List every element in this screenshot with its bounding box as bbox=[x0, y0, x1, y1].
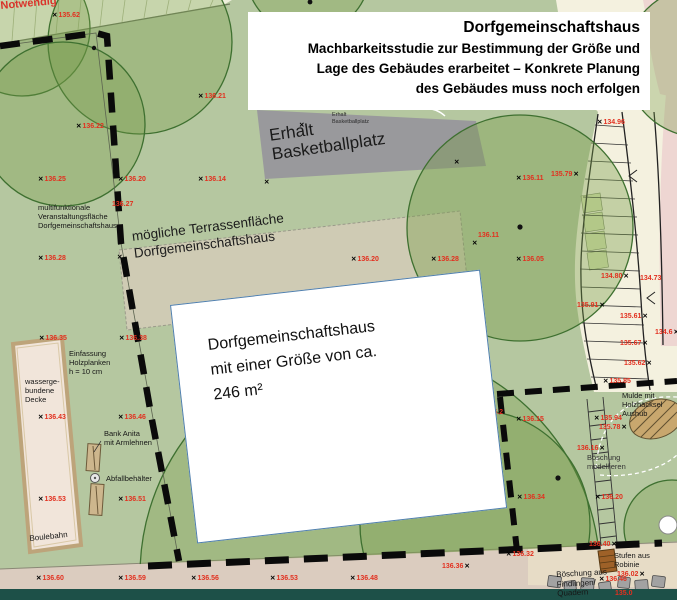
building-footprint-box: Dorfgemeinschaftshaus mit einer Größe vo… bbox=[170, 270, 507, 544]
page-subtitle: Machbarkeitsstudie zur Bestimmung der Gr… bbox=[258, 39, 640, 100]
page-title: Dorfgemeinschaftshaus bbox=[258, 18, 640, 39]
waste-bin-icon bbox=[91, 474, 100, 483]
building-label: Dorfgemeinschaftshaus mit einer Größe vo… bbox=[207, 315, 382, 408]
title-box: Dorfgemeinschaftshaus Machbarkeitsstudie… bbox=[248, 12, 650, 110]
wooden-steps bbox=[598, 549, 617, 573]
site-plan-canvas: mögliche Terrassenfläche Dorfgemeinschaf… bbox=[0, 0, 677, 600]
bottom-bar bbox=[0, 589, 677, 600]
well-circle bbox=[659, 516, 677, 534]
